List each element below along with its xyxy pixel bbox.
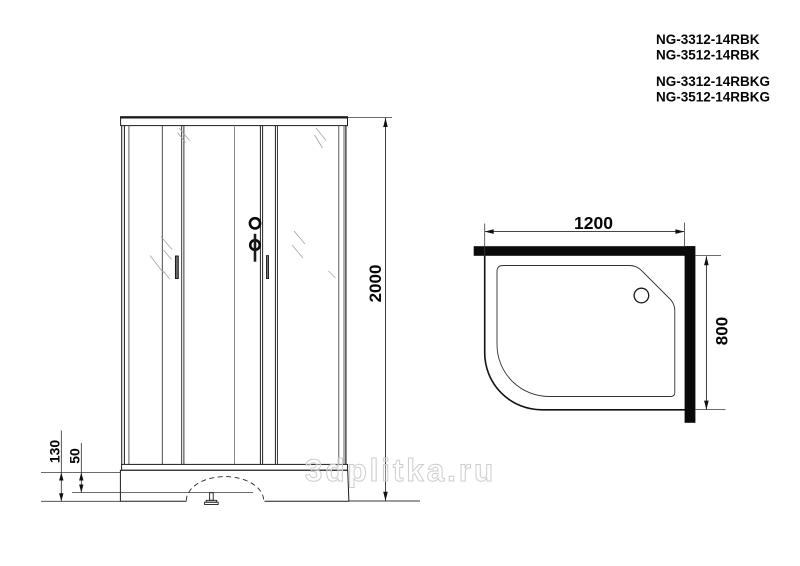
- svg-text:2000: 2000: [366, 265, 385, 303]
- svg-text:3dplitka.ru: 3dplitka.ru: [305, 452, 496, 488]
- svg-text:NG-3512-14RBK: NG-3512-14RBK: [656, 48, 760, 63]
- svg-text:130: 130: [47, 440, 63, 464]
- svg-text:800: 800: [712, 317, 731, 345]
- svg-text:NG-3512-14RBKG: NG-3512-14RBKG: [656, 90, 770, 105]
- svg-text:50: 50: [66, 448, 82, 464]
- svg-text:NG-3312-14RBKG: NG-3312-14RBKG: [656, 74, 770, 89]
- svg-text:1200: 1200: [574, 213, 613, 233]
- svg-text:NG-3312-14RBK: NG-3312-14RBK: [656, 32, 760, 47]
